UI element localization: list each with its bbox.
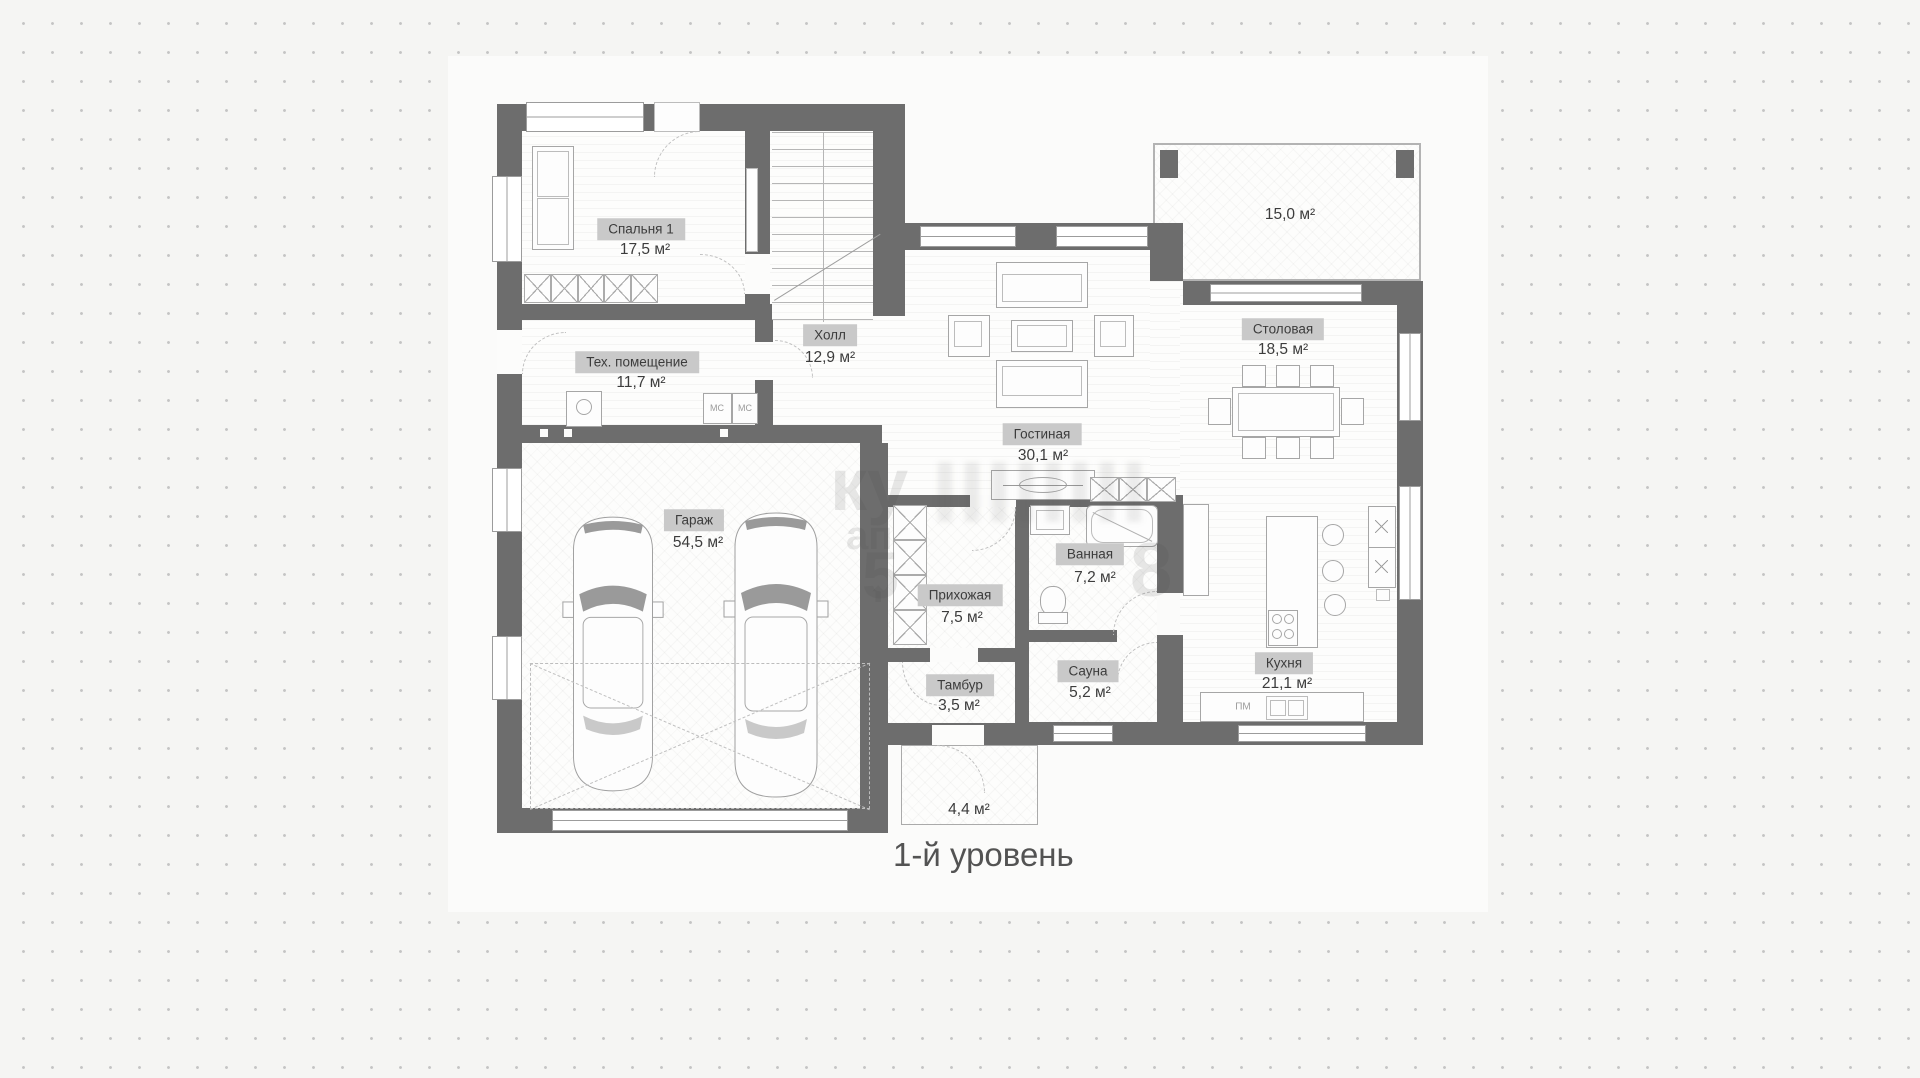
window — [1399, 333, 1421, 421]
window — [492, 636, 522, 700]
room-label-dining: Столовая — [1242, 318, 1324, 340]
chair — [1341, 398, 1364, 425]
window — [1399, 486, 1421, 600]
window — [1056, 226, 1148, 247]
door-opening — [497, 330, 522, 374]
burner — [1284, 629, 1294, 639]
bar-stool — [1324, 594, 1346, 616]
radiator — [746, 168, 758, 252]
window — [920, 226, 1016, 247]
room-label-vestibule: Тамбур — [926, 674, 994, 696]
room-label-sauna: Сауна — [1058, 660, 1119, 682]
wall-pillar-marker — [720, 429, 728, 437]
room-area-entryhall: 7,5 м² — [941, 609, 983, 627]
room-label-bathroom: Ванная — [1056, 543, 1124, 565]
burner — [1284, 614, 1294, 624]
wall-pillar-marker — [540, 429, 548, 437]
wall-segment — [873, 104, 905, 316]
room-area-garage: 54,5 м² — [673, 534, 723, 552]
dishwasher-mark: ПМ — [1235, 702, 1251, 713]
wall-segment — [497, 304, 772, 320]
staircase — [772, 132, 873, 322]
burner — [1272, 614, 1282, 624]
watermark-arrow-icon: ⬆ — [869, 584, 887, 606]
bar-stool — [1322, 524, 1344, 546]
room-label-hall: Холл — [803, 324, 857, 346]
window — [492, 176, 522, 262]
sofa-seat — [1002, 366, 1082, 396]
chair — [1276, 437, 1300, 459]
chair — [1310, 437, 1334, 459]
chair — [1276, 365, 1300, 387]
room-area-bathroom: 7,2 м² — [1074, 569, 1116, 587]
window — [1053, 725, 1113, 742]
wall-segment — [755, 320, 773, 342]
room-label-kitchen: Кухня — [1255, 652, 1313, 674]
door-opening — [932, 725, 984, 745]
chair — [1310, 365, 1334, 387]
wall-segment — [1150, 223, 1183, 281]
window — [1210, 284, 1362, 302]
boiler-dial — [576, 399, 592, 415]
sink-bowl — [1270, 700, 1286, 716]
window — [492, 468, 522, 532]
porch-area-label: 4,4 м² — [948, 801, 990, 819]
kitchen-counter — [1183, 504, 1209, 596]
watermark-band — [938, 462, 1143, 522]
garage-door — [552, 810, 848, 831]
sofa-seat — [1002, 274, 1082, 302]
bed-cushion — [537, 198, 569, 245]
dining-table-top — [1238, 393, 1334, 431]
room-area-hall: 12,9 м² — [805, 349, 855, 367]
wardrobe — [524, 274, 658, 303]
wall-segment — [1029, 630, 1117, 642]
watermark-fragment: ку — [830, 448, 908, 522]
room-label-bedroom: Спальня 1 — [597, 218, 685, 240]
bar-stool — [1322, 560, 1344, 582]
chair — [1242, 365, 1266, 387]
cabinet-x-mark — [1375, 560, 1388, 573]
cabinet-divider — [1368, 547, 1396, 548]
terrace-area-label: 15,0 м² — [1265, 206, 1315, 224]
room-area-dining: 18,5 м² — [1258, 341, 1308, 359]
toilet-tank — [1038, 612, 1068, 624]
room-label-garage: Гараж — [664, 509, 724, 531]
door-marker — [1376, 589, 1390, 601]
room-area-bedroom: 17,5 м² — [620, 241, 670, 259]
room-area-kitchen: 21,1 м² — [1262, 675, 1312, 693]
bed-cushion — [537, 151, 569, 197]
terrace-pillar — [1396, 150, 1414, 178]
washing-machine-mark: МС — [710, 403, 724, 413]
room-area-living: 30,1 м² — [1018, 447, 1068, 465]
door-opening — [930, 648, 978, 662]
door-opening — [745, 254, 770, 294]
burner — [1272, 629, 1282, 639]
room-area-sauna: 5,2 м² — [1069, 684, 1111, 702]
armchair-seat — [954, 321, 982, 347]
armchair-seat — [1100, 321, 1126, 347]
room-label-tech: Тех. помещение — [575, 351, 699, 373]
sink-bowl — [1288, 700, 1304, 716]
terrace-pillar — [1160, 150, 1178, 178]
floor-plan-page: МС МС ПМ — [0, 0, 1920, 1078]
coffee-table-top — [1017, 325, 1067, 347]
balcony-door — [654, 102, 700, 132]
page-title: 1-й уровень — [893, 836, 1074, 874]
wall-segment — [497, 425, 882, 443]
watermark-fragment: 8 — [1130, 533, 1172, 609]
window — [1238, 725, 1366, 742]
window — [526, 102, 644, 132]
cabinet-x-mark — [1375, 520, 1388, 533]
chair — [1242, 437, 1266, 459]
room-area-tech: 11,7 м² — [616, 374, 665, 392]
room-label-living: Гостиная — [1003, 423, 1082, 445]
room-area-vestibule: 3,5 м² — [938, 697, 980, 715]
wall-segment — [1015, 495, 1029, 722]
wall-pillar-marker — [564, 429, 572, 437]
room-label-entryhall: Прихожая — [918, 584, 1003, 606]
wall-segment — [1157, 635, 1183, 722]
washing-machine-mark: МС — [738, 403, 752, 413]
chair — [1208, 398, 1231, 425]
wall-segment — [745, 294, 770, 306]
